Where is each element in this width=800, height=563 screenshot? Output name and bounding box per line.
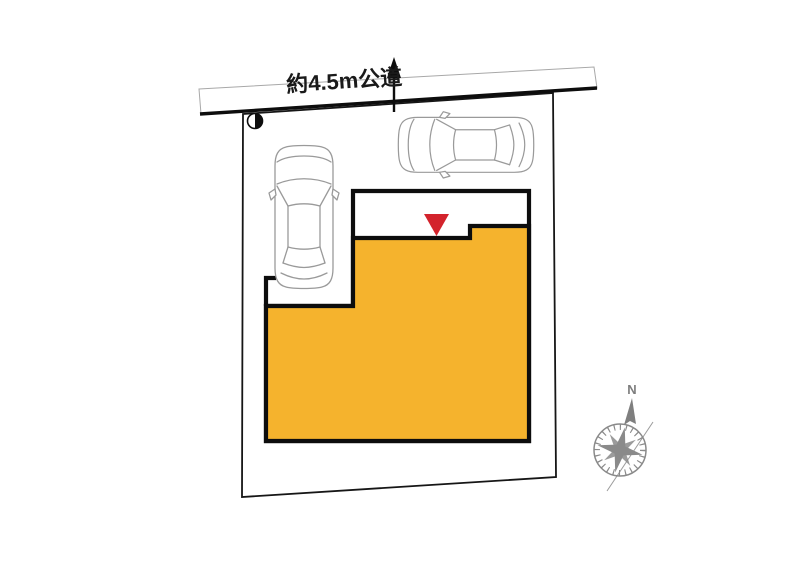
- compass-rose-icon: N: [593, 382, 653, 491]
- survey-marker-icon: [248, 114, 263, 129]
- north-label: N: [627, 382, 636, 397]
- north-needle: [624, 398, 636, 425]
- road-label: 約4.5m公道: [285, 64, 403, 97]
- car-top-view-right: [398, 112, 533, 178]
- car-top-view-left: [269, 146, 339, 289]
- site-plan: 約4.5m公道: [0, 0, 800, 563]
